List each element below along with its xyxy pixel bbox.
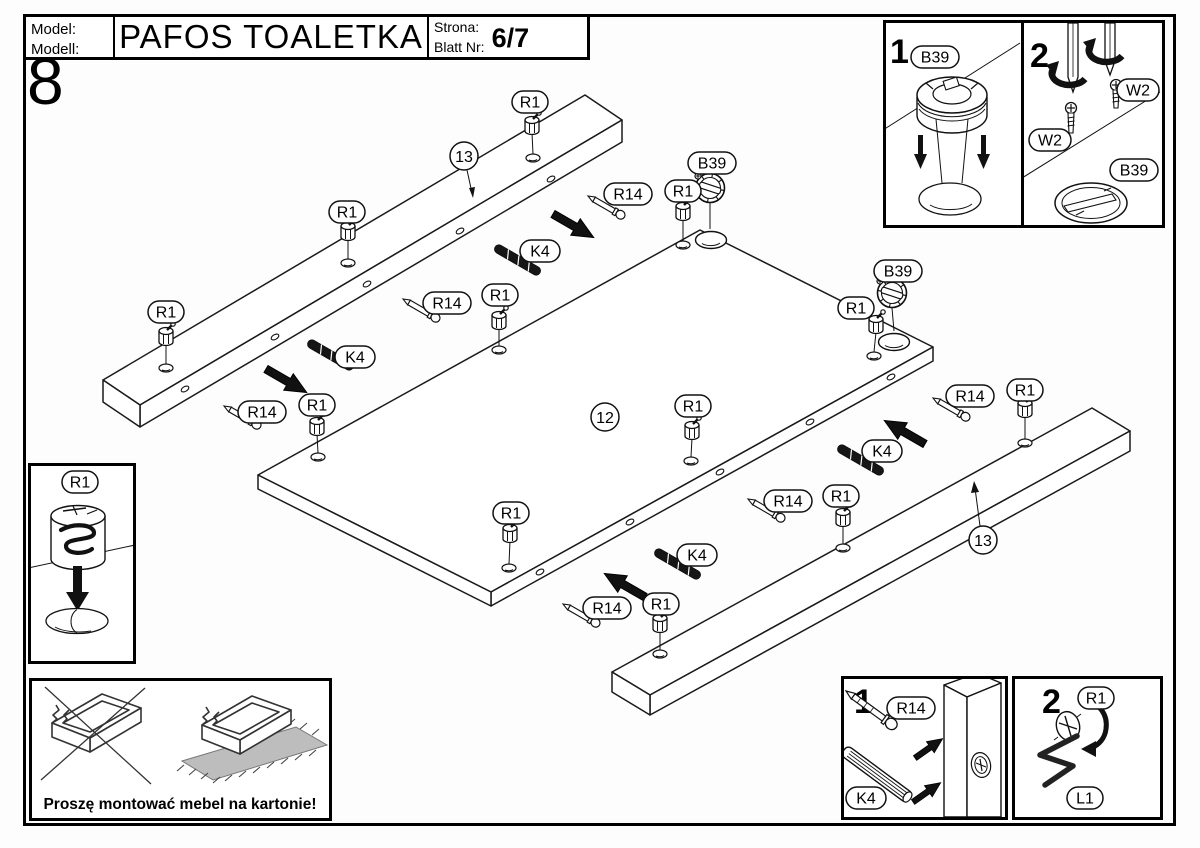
inset-cam-detail-drawing: R1 xyxy=(31,466,133,661)
callout-r1: R1 xyxy=(665,180,701,202)
svg-text:B39: B39 xyxy=(698,156,727,173)
installed-cam-icon xyxy=(1055,183,1127,223)
cam-lock-large-icon xyxy=(51,506,105,570)
callout-w2: W2 xyxy=(1117,79,1159,101)
svg-text:13: 13 xyxy=(974,533,992,550)
svg-text:R1: R1 xyxy=(831,489,852,506)
callout-k4: K4 xyxy=(862,440,902,462)
svg-text:L1: L1 xyxy=(1076,791,1094,808)
inset-cam-detail: R1 xyxy=(28,463,136,664)
callout-b39: B39 xyxy=(688,152,736,174)
svg-text:R1: R1 xyxy=(1015,383,1036,400)
page-title: PAFOS TOALETKA xyxy=(115,17,427,57)
inset-step2-drawing: 2 xyxy=(1024,23,1162,225)
callout-k4: K4 xyxy=(335,346,375,368)
large-cam-hole xyxy=(696,232,727,249)
hole xyxy=(502,564,516,572)
callout-r1: R1 xyxy=(823,485,859,507)
allen-key-icon xyxy=(1040,736,1077,785)
svg-text:W2: W2 xyxy=(1126,83,1150,100)
svg-text:13: 13 xyxy=(455,149,473,166)
svg-text:K4: K4 xyxy=(872,444,892,461)
svg-text:R14: R14 xyxy=(613,187,642,204)
callout-r14: R14 xyxy=(604,183,652,205)
svg-text:R1: R1 xyxy=(501,506,522,523)
svg-text:R1: R1 xyxy=(1086,691,1107,708)
svg-text:B39: B39 xyxy=(884,264,913,281)
svg-text:R1: R1 xyxy=(520,95,541,112)
svg-text:R1: R1 xyxy=(156,305,177,322)
svg-text:R1: R1 xyxy=(490,288,511,305)
callout-r14: R14 xyxy=(887,697,935,719)
down-arrow-icon xyxy=(914,135,927,169)
step-number: 8 xyxy=(27,48,64,114)
direction-arrow-icon xyxy=(911,733,947,764)
cam-lock-icon xyxy=(492,306,508,330)
large-cam-hole xyxy=(879,334,910,351)
callout-r14: R14 xyxy=(423,292,471,314)
callout-r1: R1 xyxy=(643,593,679,615)
instruction-sheet: { "header": { "model_label_line1": "Mode… xyxy=(0,0,1200,848)
step-numeral: 2 xyxy=(1030,37,1049,75)
rotate-arrow-icon xyxy=(1083,38,1122,62)
inset-step1-drawing: 1 xyxy=(886,23,1021,225)
step-numeral: 2 xyxy=(1042,683,1061,721)
screwdriver-icon xyxy=(1105,23,1115,75)
inset-dowel-drawing: 1 R14 K4 xyxy=(844,679,1005,817)
hole xyxy=(341,259,355,267)
callout-k4: K4 xyxy=(846,787,886,809)
page-number-label: Strona: Blatt Nr: xyxy=(434,18,485,57)
svg-text:K4: K4 xyxy=(687,548,707,565)
hole xyxy=(526,154,540,162)
callout-r1: R1 xyxy=(62,471,98,493)
direction-arrow-icon xyxy=(261,361,311,401)
hole xyxy=(1018,439,1032,447)
svg-text:W2: W2 xyxy=(1038,133,1062,150)
page-label-line2: Blatt Nr: xyxy=(434,38,485,58)
svg-text:R1: R1 xyxy=(337,205,358,222)
svg-text:K4: K4 xyxy=(345,350,365,367)
callout-r1: R1 xyxy=(1007,379,1043,401)
callout-b39: B39 xyxy=(911,46,959,68)
inset-cam-lock-drawing: 2 R1 L1 xyxy=(1015,679,1160,817)
cam-hole xyxy=(46,609,108,634)
part-circle-12: 12 xyxy=(591,403,619,431)
svg-text:12: 12 xyxy=(596,410,614,427)
svg-text:R1: R1 xyxy=(683,399,704,416)
svg-text:K4: K4 xyxy=(856,791,876,808)
step-numeral: 1 xyxy=(890,33,909,71)
inset-cam-install-step2: 2 xyxy=(1024,23,1162,225)
warning-text: Proszę montować mebel na kartonie! xyxy=(43,796,316,813)
callout-r1: R1 xyxy=(482,284,518,306)
callout-r14: R14 xyxy=(583,597,631,619)
callout-k4: K4 xyxy=(677,544,717,566)
svg-text:R1: R1 xyxy=(651,597,672,614)
callout-b39: B39 xyxy=(874,260,922,282)
hole xyxy=(836,544,850,552)
screw-icon xyxy=(1066,103,1077,134)
svg-text:R1: R1 xyxy=(70,475,91,492)
callout-b39: B39 xyxy=(1110,159,1158,181)
svg-text:B39: B39 xyxy=(1120,163,1149,180)
callout-r1: R1 xyxy=(148,301,184,323)
down-arrow-icon xyxy=(977,135,990,169)
wrong-assembly-icon xyxy=(41,687,151,784)
page-number-value: 6/7 xyxy=(492,23,530,54)
inset-cam-lock: 2 R1 L1 xyxy=(1012,676,1163,820)
callout-w2: W2 xyxy=(1029,129,1071,151)
inset-dowel-insert: 1 R14 K4 xyxy=(841,676,1008,820)
callout-r1: R1 xyxy=(329,201,365,223)
svg-text:R14: R14 xyxy=(773,494,802,511)
cam-lock-icon xyxy=(525,111,541,135)
callout-r14: R14 xyxy=(946,385,994,407)
hole xyxy=(684,457,698,465)
direction-arrow-icon xyxy=(909,777,945,808)
svg-text:R14: R14 xyxy=(592,601,621,618)
svg-text:R14: R14 xyxy=(955,389,984,406)
large-cam-hole xyxy=(919,183,981,215)
svg-text:R14: R14 xyxy=(896,701,925,718)
cam-lock-icon xyxy=(159,322,175,346)
model-label-line1: Model: xyxy=(31,20,111,40)
callout-r1: R1 xyxy=(493,502,529,524)
inset-cam-install: 1 xyxy=(883,20,1165,228)
svg-text:R1: R1 xyxy=(673,184,694,201)
rotate-arrow-icon xyxy=(1046,61,1085,85)
header: Model: Modell: PAFOS TOALETKA Strona: Bl… xyxy=(23,14,590,60)
inset-cam-install-step1: 1 xyxy=(886,23,1024,225)
callout-r14: R14 xyxy=(764,490,812,512)
callout-r1: R1 xyxy=(838,297,874,319)
hole xyxy=(653,650,667,658)
callout-l1: L1 xyxy=(1067,787,1103,809)
hole xyxy=(492,346,506,354)
callout-r1: R1 xyxy=(1078,687,1114,709)
callout-r1: R1 xyxy=(299,394,335,416)
callout-k4: K4 xyxy=(520,240,560,262)
svg-text:R1: R1 xyxy=(846,301,867,318)
page-number-cell: Strona: Blatt Nr: 6/7 xyxy=(427,17,587,57)
svg-text:K4: K4 xyxy=(530,244,550,261)
direction-arrow-icon xyxy=(548,206,598,246)
callout-r1: R1 xyxy=(512,91,548,113)
callout-r1: R1 xyxy=(675,395,711,417)
down-arrow-icon xyxy=(66,566,89,611)
callout-r14: R14 xyxy=(238,401,286,423)
cam-housing-icon xyxy=(917,77,987,133)
svg-text:R14: R14 xyxy=(432,296,461,313)
hole xyxy=(159,364,173,372)
warning-box: Proszę montować mebel na kartonie! xyxy=(29,678,332,821)
warning-drawing: Proszę montować mebel na kartonie! xyxy=(32,681,329,818)
hole xyxy=(676,241,690,249)
svg-text:R14: R14 xyxy=(247,405,276,422)
page-label-line1: Strona: xyxy=(434,18,485,38)
hole xyxy=(867,352,881,360)
panel-edge xyxy=(944,679,1001,817)
svg-text:B39: B39 xyxy=(921,50,950,67)
svg-text:R1: R1 xyxy=(307,398,328,415)
hole xyxy=(311,453,325,461)
